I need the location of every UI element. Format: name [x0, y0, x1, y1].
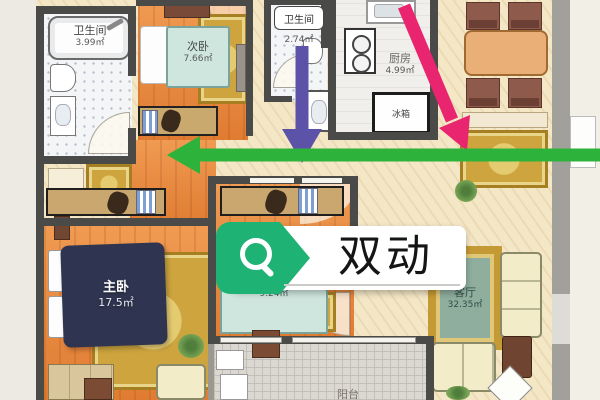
wall-segment: [264, 0, 271, 102]
floorplan-canvas: 冰箱: [0, 0, 600, 400]
room-area: 17.5㎡: [76, 296, 156, 310]
balcony-unit: [216, 350, 244, 370]
wall-segment: [36, 6, 136, 14]
wall-segment: [36, 218, 216, 226]
dining-chair: [508, 78, 542, 108]
rug-dining: [460, 130, 548, 188]
plant-master: [178, 334, 204, 358]
wall-segment: [336, 132, 436, 140]
wall-segment: [128, 6, 136, 76]
sofa-long: [500, 252, 542, 338]
search-badge-label[interactable]: 双动: [308, 228, 464, 286]
room-area-bathroom-mid: 2.74㎡: [274, 32, 324, 45]
room-label-master-bedroom: 主卧 17.5㎡: [76, 280, 156, 310]
room-label-second-bedroom: 次卧 7.66㎡: [168, 40, 228, 65]
room-area: 32.35㎡: [438, 300, 492, 311]
plant-living-bottom: [446, 386, 470, 400]
wall-segment: [36, 156, 134, 164]
outside-left: [0, 0, 36, 400]
balcony-door-frame: [292, 337, 416, 343]
room-name: 卫生间: [284, 11, 314, 26]
room-label-bathroom-mid-plate: 卫生间: [274, 6, 324, 30]
room-label-bathroom-left: 卫生间 3.99㎡: [60, 24, 120, 49]
room-name: 主卧: [76, 280, 156, 296]
dining-console: [462, 112, 548, 128]
wall-left-outer: [36, 6, 44, 400]
wall-segment: [208, 176, 216, 344]
sink-basin-mid: [311, 100, 327, 124]
wall-segment: [430, 0, 438, 140]
room-name: 卫生间: [60, 24, 120, 38]
wall-segment: [246, 0, 253, 136]
room-area: 4.99㎡: [374, 66, 426, 77]
dining-chair: [466, 2, 500, 30]
balcony-door-frame: [220, 337, 282, 343]
sofa-loveseat: [432, 342, 496, 392]
dining-table: [464, 30, 548, 76]
room-label-balcony: 阳台: [324, 386, 372, 400]
wall-segment: [350, 176, 358, 232]
door-frame: [302, 178, 342, 183]
room-name: 厨房: [374, 52, 426, 66]
toilet-left: [50, 64, 76, 92]
outside-cabinet: [570, 116, 596, 168]
chair-middle-bedroom: [252, 330, 280, 358]
stove-burner: [352, 35, 371, 54]
purple-arrow-head: [282, 129, 322, 163]
kitchen-sink-basin: [374, 4, 404, 18]
master-armchair: [156, 364, 206, 400]
room-area: 7.66㎡: [168, 54, 228, 65]
room-name: 次卧: [168, 40, 228, 54]
wall-right-door-gap: [552, 294, 570, 344]
wall-segment: [264, 0, 328, 5]
room-area: 3.99㎡: [60, 38, 120, 49]
wall-segment: [426, 336, 434, 400]
plant-living-top: [455, 180, 477, 202]
fridge: 冰箱: [372, 92, 430, 134]
sink-basin-left: [55, 104, 71, 126]
fridge-label: 冰箱: [392, 107, 410, 120]
shirt-on-desk: [142, 110, 158, 134]
outside-right: [570, 0, 600, 400]
wall-segment: [328, 0, 336, 140]
wall-segment: [264, 96, 292, 102]
wall-segment: [136, 0, 252, 6]
shirt-middle-desk: [298, 188, 318, 214]
wall-segment: [208, 344, 214, 400]
room-label-kitchen: 厨房 4.99㎡: [374, 52, 426, 77]
dining-chair: [466, 78, 500, 108]
door-frame: [250, 178, 294, 183]
dining-chair: [508, 2, 542, 30]
stove: [344, 28, 376, 74]
stove-burner: [352, 54, 371, 73]
master-dresser: [84, 378, 112, 400]
shirt-on-entry-desk: [136, 190, 156, 214]
balcony-washer: [220, 374, 248, 400]
board-second-bedroom: [236, 44, 246, 92]
